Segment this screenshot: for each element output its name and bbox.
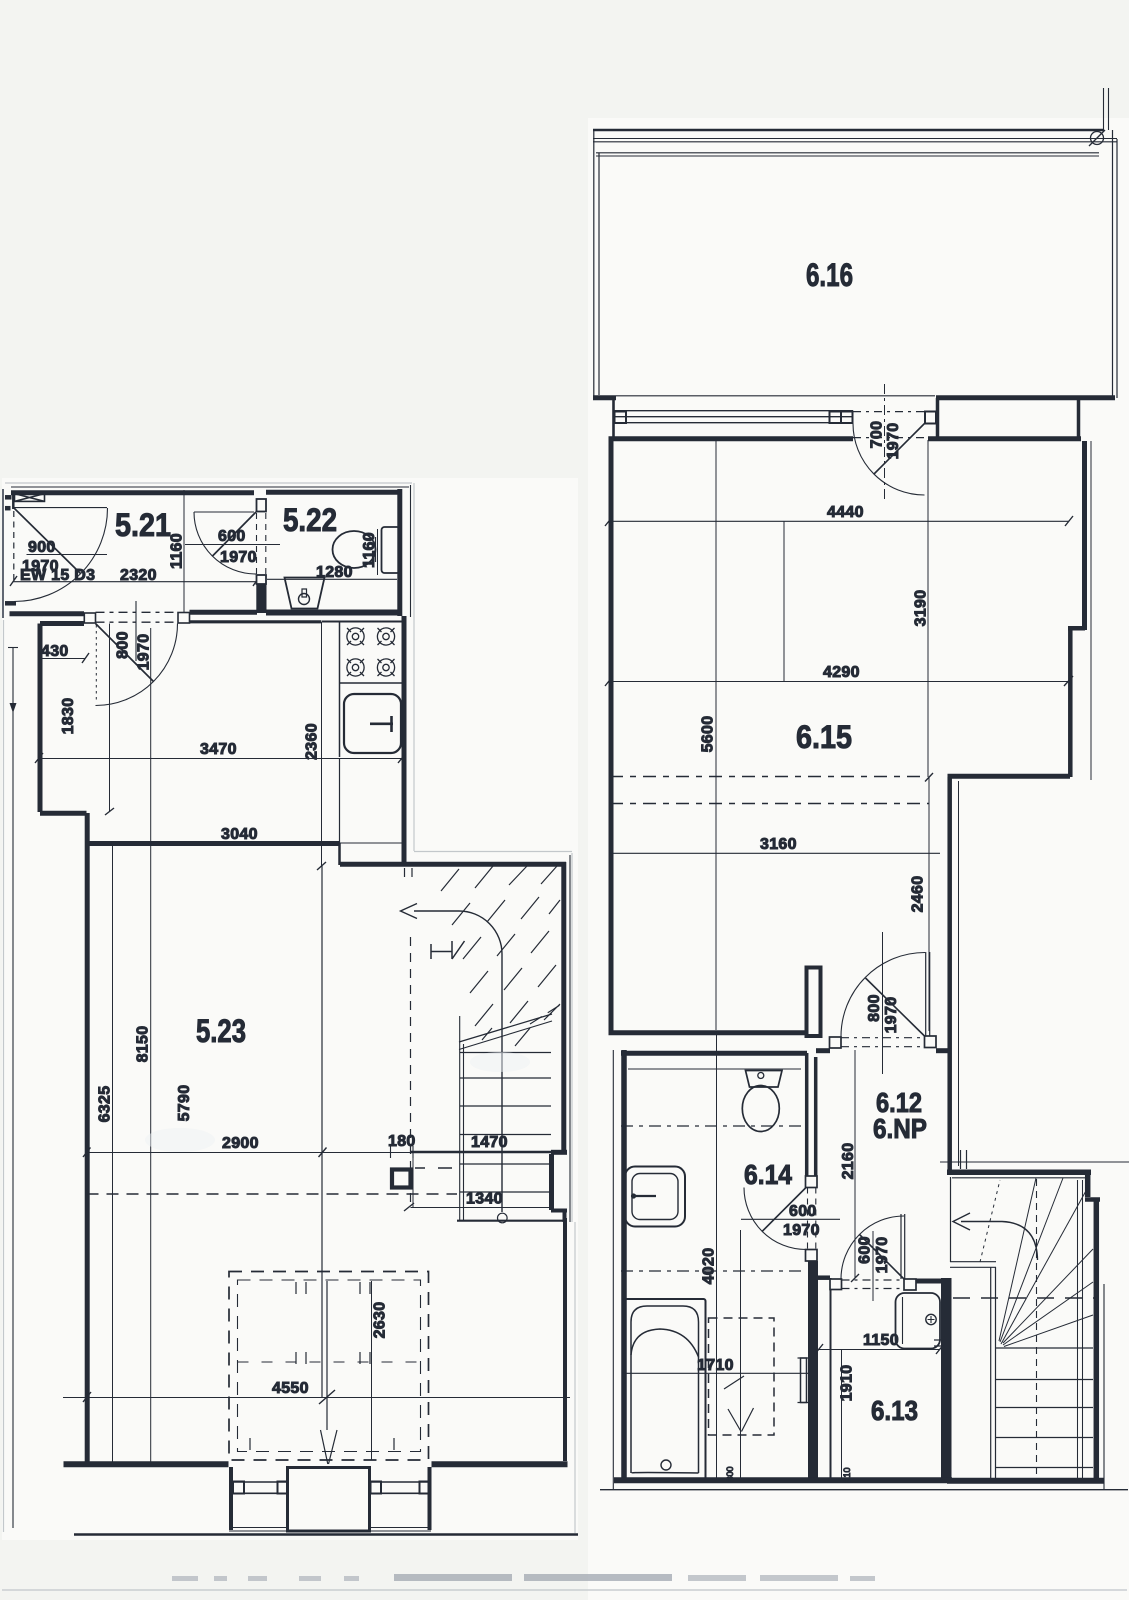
svg-text:2320: 2320 <box>120 567 157 584</box>
svg-text:2900: 2900 <box>222 1135 259 1152</box>
svg-text:1830: 1830 <box>60 698 77 735</box>
svg-text:1160: 1160 <box>361 532 378 568</box>
svg-text:1710: 1710 <box>697 1357 734 1374</box>
svg-text:2360: 2360 <box>304 723 321 760</box>
svg-text:6325: 6325 <box>97 1086 114 1123</box>
svg-text:6.NP: 6.NP <box>873 1113 927 1144</box>
svg-text:800: 800 <box>115 631 132 659</box>
svg-text:8150: 8150 <box>135 1026 152 1063</box>
svg-text:600: 600 <box>857 1236 874 1264</box>
svg-text:180: 180 <box>388 1133 416 1150</box>
svg-text:4290: 4290 <box>823 664 860 681</box>
svg-text:1280: 1280 <box>316 564 353 581</box>
svg-text:800: 800 <box>866 994 883 1022</box>
svg-text:6.13: 6.13 <box>871 1395 918 1426</box>
svg-text:5.23: 5.23 <box>196 1013 246 1049</box>
svg-text:5.22: 5.22 <box>283 502 337 538</box>
svg-text:1160: 1160 <box>169 533 186 569</box>
svg-text:6.16: 6.16 <box>806 257 853 293</box>
svg-text:4020: 4020 <box>701 1248 718 1285</box>
svg-text:1970: 1970 <box>783 1222 820 1239</box>
svg-text:1150: 1150 <box>863 1332 899 1349</box>
svg-text:1970: 1970 <box>874 1237 891 1274</box>
svg-text:700: 700 <box>869 421 886 449</box>
svg-text:600: 600 <box>218 528 246 545</box>
svg-text:5790: 5790 <box>176 1085 193 1122</box>
svg-text:3470: 3470 <box>200 741 237 758</box>
svg-text:5600: 5600 <box>700 716 717 753</box>
svg-text:1970: 1970 <box>885 423 902 460</box>
svg-text:1970: 1970 <box>136 634 153 671</box>
svg-text:4440: 4440 <box>827 504 864 521</box>
svg-text:3040: 3040 <box>221 826 258 843</box>
svg-text:1970: 1970 <box>883 997 900 1034</box>
svg-text:EW 15 D3: EW 15 D3 <box>20 567 95 584</box>
svg-text:5.21: 5.21 <box>115 507 171 543</box>
svg-text:6.15: 6.15 <box>796 719 852 755</box>
svg-text:310: 310 <box>842 1467 852 1482</box>
svg-text:600: 600 <box>789 1203 817 1220</box>
svg-text:3160: 3160 <box>760 836 797 853</box>
svg-text:1340: 1340 <box>466 1191 503 1208</box>
svg-text:2160: 2160 <box>840 1143 857 1180</box>
svg-text:1470: 1470 <box>471 1134 508 1151</box>
svg-text:6.14: 6.14 <box>744 1159 792 1190</box>
svg-text:2630: 2630 <box>372 1302 389 1339</box>
svg-text:4550: 4550 <box>272 1380 309 1397</box>
svg-text:900: 900 <box>28 539 56 556</box>
svg-text:300: 300 <box>725 1466 735 1481</box>
svg-text:430: 430 <box>41 643 69 660</box>
svg-text:2460: 2460 <box>910 876 927 913</box>
svg-text:3190: 3190 <box>913 590 930 627</box>
svg-text:1910: 1910 <box>839 1365 856 1402</box>
svg-text:1970: 1970 <box>220 549 257 566</box>
